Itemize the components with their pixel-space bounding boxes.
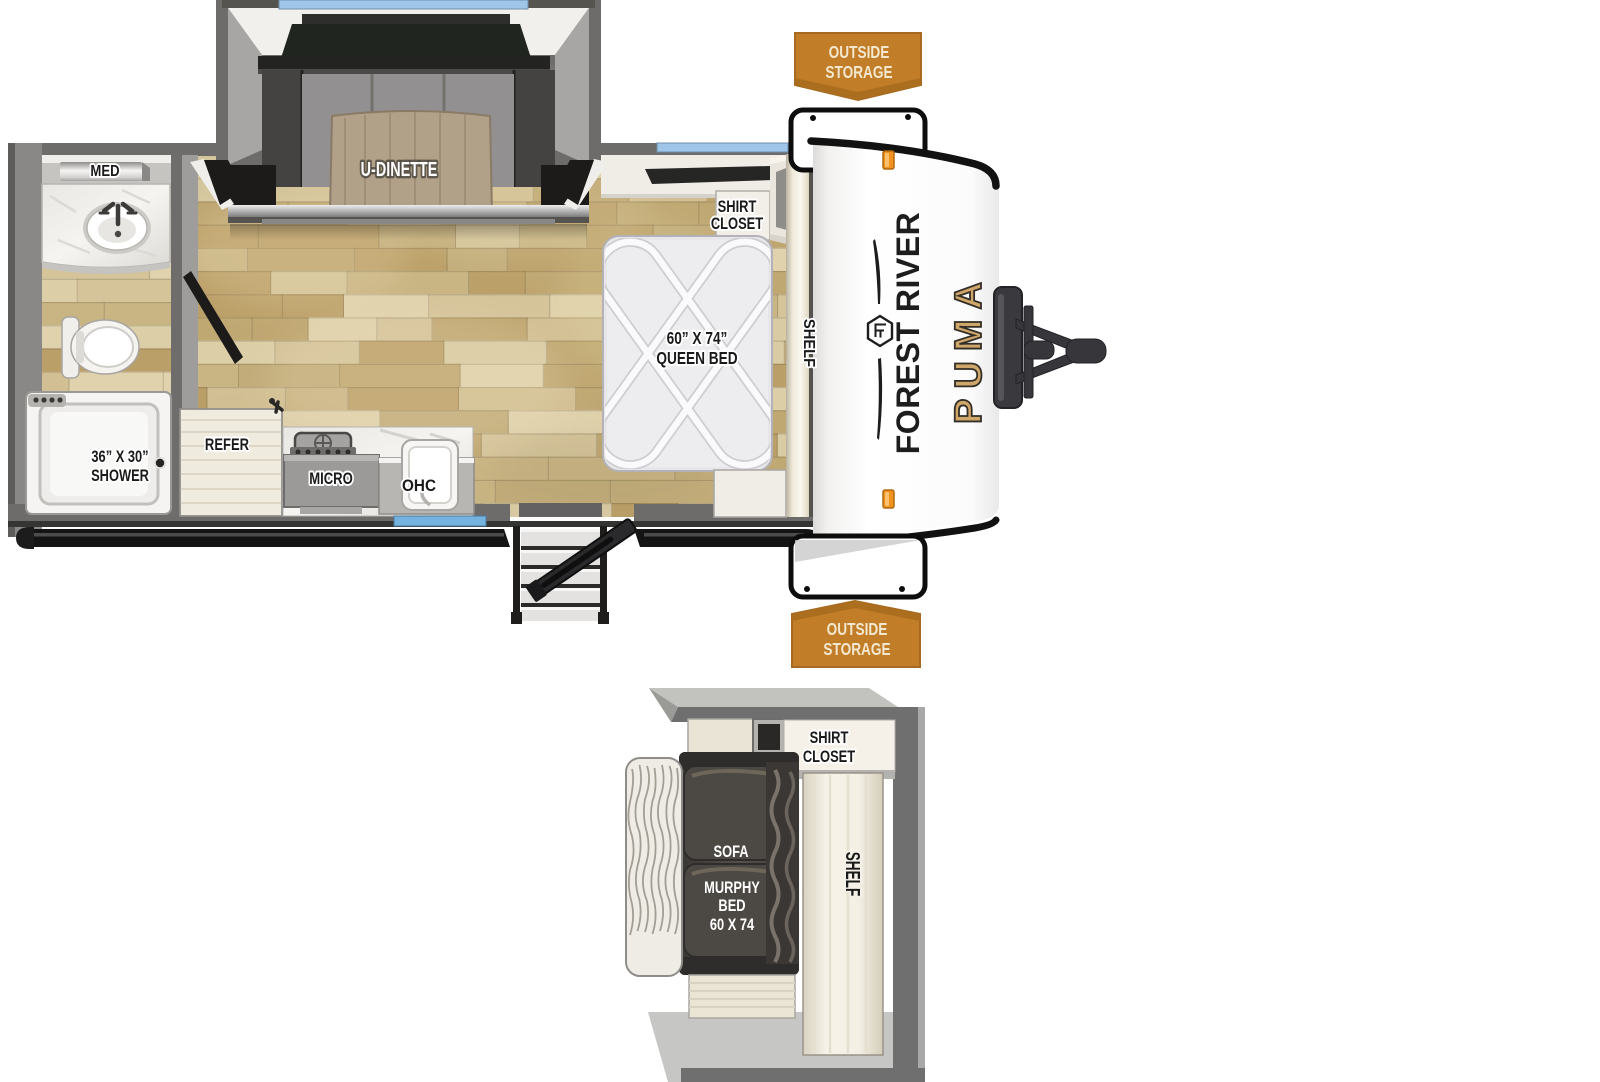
svg-text:MURPHY: MURPHY [704,880,760,898]
svg-text:CLOSET: CLOSET [803,747,856,766]
svg-text:CLOSET: CLOSET [711,214,764,233]
svg-text:OUTSIDE: OUTSIDE [827,621,888,640]
svg-text:BED: BED [718,898,745,916]
svg-text:FOREST RIVER: FOREST RIVER [890,212,926,454]
svg-text:36” X 30”: 36” X 30” [91,449,148,467]
svg-text:SHOWER: SHOWER [91,468,149,486]
svg-text:REFER: REFER [205,437,249,455]
svg-text:OUTSIDE: OUTSIDE [829,44,890,63]
svg-text:SHELF: SHELF [800,319,818,367]
svg-text:SOFA: SOFA [713,844,748,862]
svg-text:SHIRT: SHIRT [810,728,849,747]
svg-text:MED: MED [90,163,119,180]
svg-text:MICRO: MICRO [309,469,353,488]
svg-text:PUMA: PUMA [948,272,990,424]
svg-text:60 X 74: 60 X 74 [710,917,755,935]
svg-text:SHELF: SHELF [841,852,863,897]
svg-text:OHC: OHC [402,476,436,495]
svg-text:QUEEN BED: QUEEN BED [656,349,737,368]
svg-text:STORAGE: STORAGE [823,641,890,660]
svg-text:U-DINETTE: U-DINETTE [361,158,438,181]
svg-text:60” X 74”: 60” X 74” [667,329,728,348]
svg-text:STORAGE: STORAGE [825,64,892,83]
